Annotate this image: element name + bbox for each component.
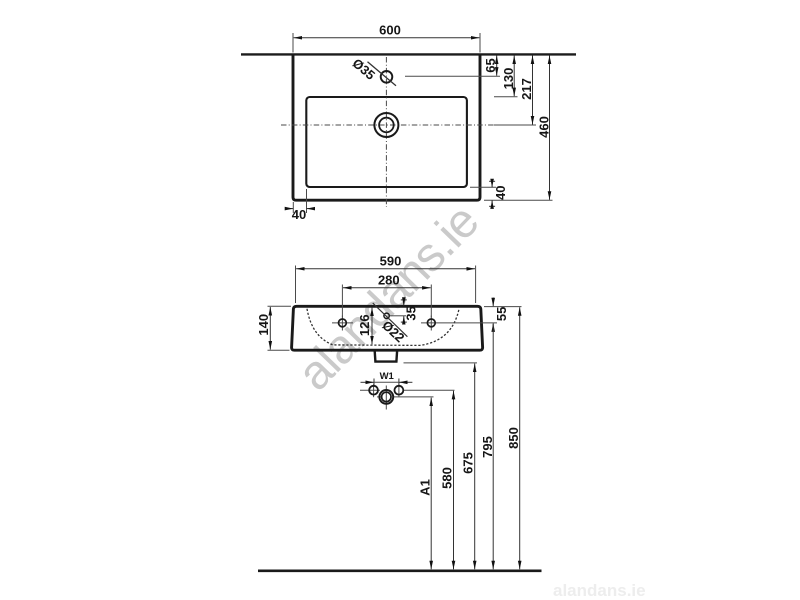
svg-text:140: 140 bbox=[256, 314, 271, 336]
svg-text:65: 65 bbox=[483, 58, 498, 72]
svg-text:40: 40 bbox=[292, 207, 306, 222]
svg-text:600: 600 bbox=[379, 23, 401, 38]
svg-text:795: 795 bbox=[480, 436, 495, 458]
svg-text:40: 40 bbox=[493, 186, 508, 200]
svg-text:675: 675 bbox=[461, 452, 476, 474]
svg-text:280: 280 bbox=[378, 273, 400, 288]
svg-text:35: 35 bbox=[404, 306, 419, 320]
svg-text:55: 55 bbox=[494, 307, 509, 321]
svg-text:Ø35: Ø35 bbox=[350, 55, 378, 82]
svg-text:580: 580 bbox=[440, 467, 455, 489]
svg-text:A1: A1 bbox=[417, 479, 432, 496]
svg-text:W1: W1 bbox=[380, 371, 395, 382]
svg-text:850: 850 bbox=[506, 427, 521, 449]
svg-text:217: 217 bbox=[519, 78, 534, 100]
svg-text:590: 590 bbox=[380, 254, 402, 269]
svg-text:126: 126 bbox=[357, 314, 372, 336]
svg-text:alandans.ie: alandans.ie bbox=[553, 581, 646, 600]
svg-text:130: 130 bbox=[501, 68, 516, 90]
svg-text:460: 460 bbox=[536, 116, 551, 138]
